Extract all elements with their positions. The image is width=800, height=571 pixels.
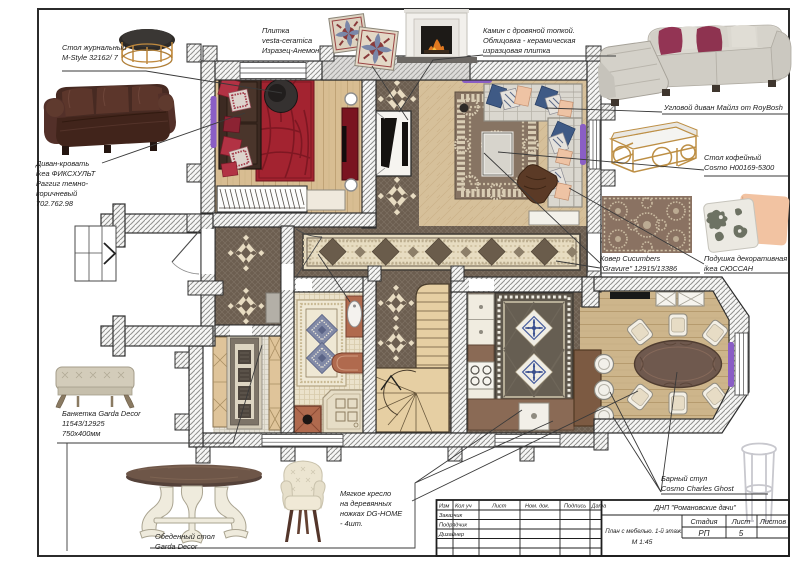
svg-text:План с мебелью. 1-й этаж.: План с мебелью. 1-й этаж. — [605, 528, 683, 535]
svg-text:Дизайнер: Дизайнер — [438, 531, 464, 538]
svg-text:5: 5 — [739, 529, 744, 538]
svg-text:Угловой диван Майлз от RoyBosh: Угловой диван Майлз от RoyBosh — [663, 103, 783, 112]
svg-text:ikea СЮССАН: ikea СЮССАН — [704, 264, 754, 273]
svg-text:M-Style 32162/ 7: M-Style 32162/ 7 — [62, 53, 119, 62]
svg-text:Лист: Лист — [491, 504, 507, 510]
svg-text:на деревянных: на деревянных — [340, 499, 392, 508]
svg-text:Плитка: Плитка — [262, 26, 289, 35]
svg-text:Дата: Дата — [591, 504, 607, 510]
svg-text:ДНП "Романовские дачи": ДНП "Романовские дачи" — [653, 504, 736, 512]
svg-text:Изразец-Анемон: Изразец-Анемон — [262, 46, 319, 55]
svg-text:Кол уч: Кол уч — [455, 504, 472, 510]
svg-text:Камин с дровяной топкой.: Камин с дровяной топкой. — [483, 26, 575, 35]
svg-text:"Gravure" 12915/13386: "Gravure" 12915/13386 — [600, 264, 678, 273]
svg-text:Стадия: Стадия — [691, 517, 718, 526]
svg-text:Диван-кровать: Диван-кровать — [35, 159, 89, 168]
svg-text:- 4шт.: - 4шт. — [340, 519, 363, 528]
svg-text:Листов: Листов — [759, 517, 786, 526]
svg-text:Мягкое кресло: Мягкое кресло — [340, 489, 391, 498]
svg-text:Стол журнальный: Стол журнальный — [62, 43, 126, 52]
svg-text:Cosmo Н00169-5300: Cosmo Н00169-5300 — [704, 163, 775, 172]
svg-text:Garda Decor: Garda Decor — [155, 542, 198, 551]
svg-text:Обеденный стол: Обеденный стол — [155, 532, 216, 541]
svg-text:Банкетка Garda Decor: Банкетка Garda Decor — [62, 409, 141, 418]
svg-text:Облицовка - керамическая: Облицовка - керамическая — [483, 36, 576, 45]
svg-text:Лист: Лист — [731, 517, 751, 526]
svg-text:vesta-ceramica: vesta-ceramica — [262, 36, 312, 45]
svg-text:Изм: Изм — [439, 504, 450, 510]
svg-text:М 1:45: М 1:45 — [632, 539, 653, 546]
svg-text:11543/12925: 11543/12925 — [62, 419, 105, 428]
svg-text:Барный стул: Барный стул — [661, 474, 708, 483]
svg-text:Ковер Cucumbers: Ковер Cucumbers — [600, 254, 661, 263]
svg-text:коричневый: коричневый — [36, 189, 77, 198]
svg-text:Раггиг темно-: Раггиг темно- — [36, 179, 89, 188]
svg-text:750х400мм: 750х400мм — [62, 429, 101, 438]
svg-text:ikea ФИКСХУЛЬТ: ikea ФИКСХУЛЬТ — [36, 169, 96, 178]
svg-text:Подрядчик: Подрядчик — [439, 523, 467, 529]
svg-text:изразцовая плитка: изразцовая плитка — [483, 46, 550, 55]
svg-text:РП: РП — [698, 529, 709, 538]
svg-text:Подпись: Подпись — [564, 504, 586, 510]
svg-text:Cosmo Charles Ghost: Cosmo Charles Ghost — [661, 484, 735, 493]
svg-text:Ном. док.: Ном. док. — [525, 504, 550, 510]
svg-text:Подушка декоративная: Подушка декоративная — [704, 254, 787, 263]
svg-text:Стол кофейный: Стол кофейный — [704, 153, 761, 162]
svg-text:ножках DG-HOME: ножках DG-HOME — [340, 509, 402, 518]
svg-text:702.762.98: 702.762.98 — [36, 199, 74, 208]
svg-text:Заказчик: Заказчик — [439, 513, 462, 519]
